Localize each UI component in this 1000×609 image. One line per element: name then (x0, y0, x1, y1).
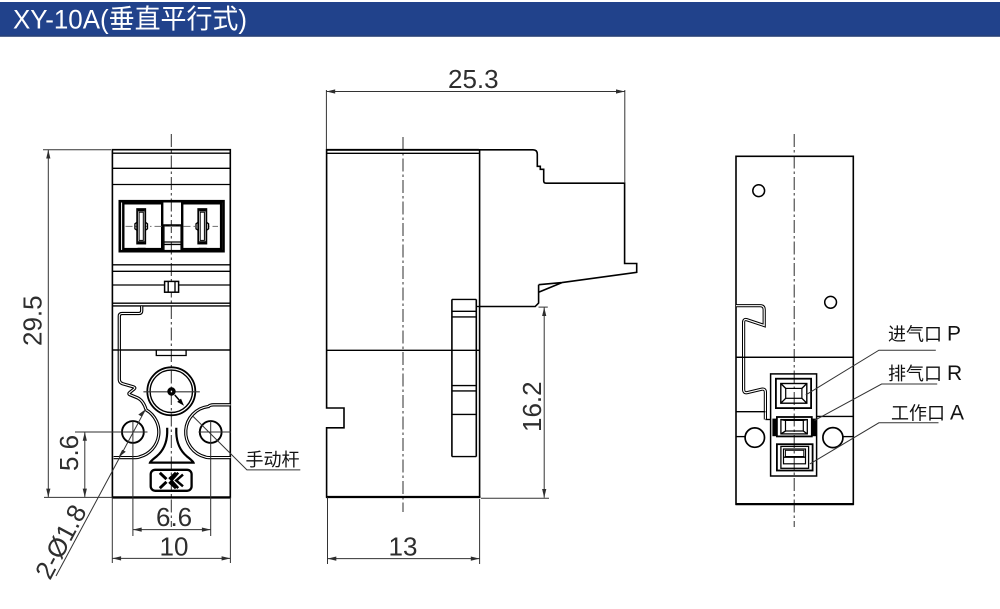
svg-text:XY-10A(垂直平行式): XY-10A(垂直平行式) (13, 5, 247, 35)
svg-text:29.5: 29.5 (18, 295, 48, 346)
svg-text:排气口 R: 排气口 R (888, 362, 962, 385)
svg-text:13: 13 (389, 532, 418, 562)
svg-text:6.6: 6.6 (156, 502, 192, 532)
svg-text:工作口 A: 工作口 A (891, 402, 964, 425)
svg-text:5.6: 5.6 (54, 435, 84, 471)
svg-text:16.2: 16.2 (517, 381, 547, 432)
svg-text:手动杆: 手动杆 (246, 450, 300, 470)
svg-text:10: 10 (160, 532, 189, 562)
svg-text:25.3: 25.3 (448, 64, 499, 94)
svg-text:进气口 P: 进气口 P (888, 323, 961, 346)
